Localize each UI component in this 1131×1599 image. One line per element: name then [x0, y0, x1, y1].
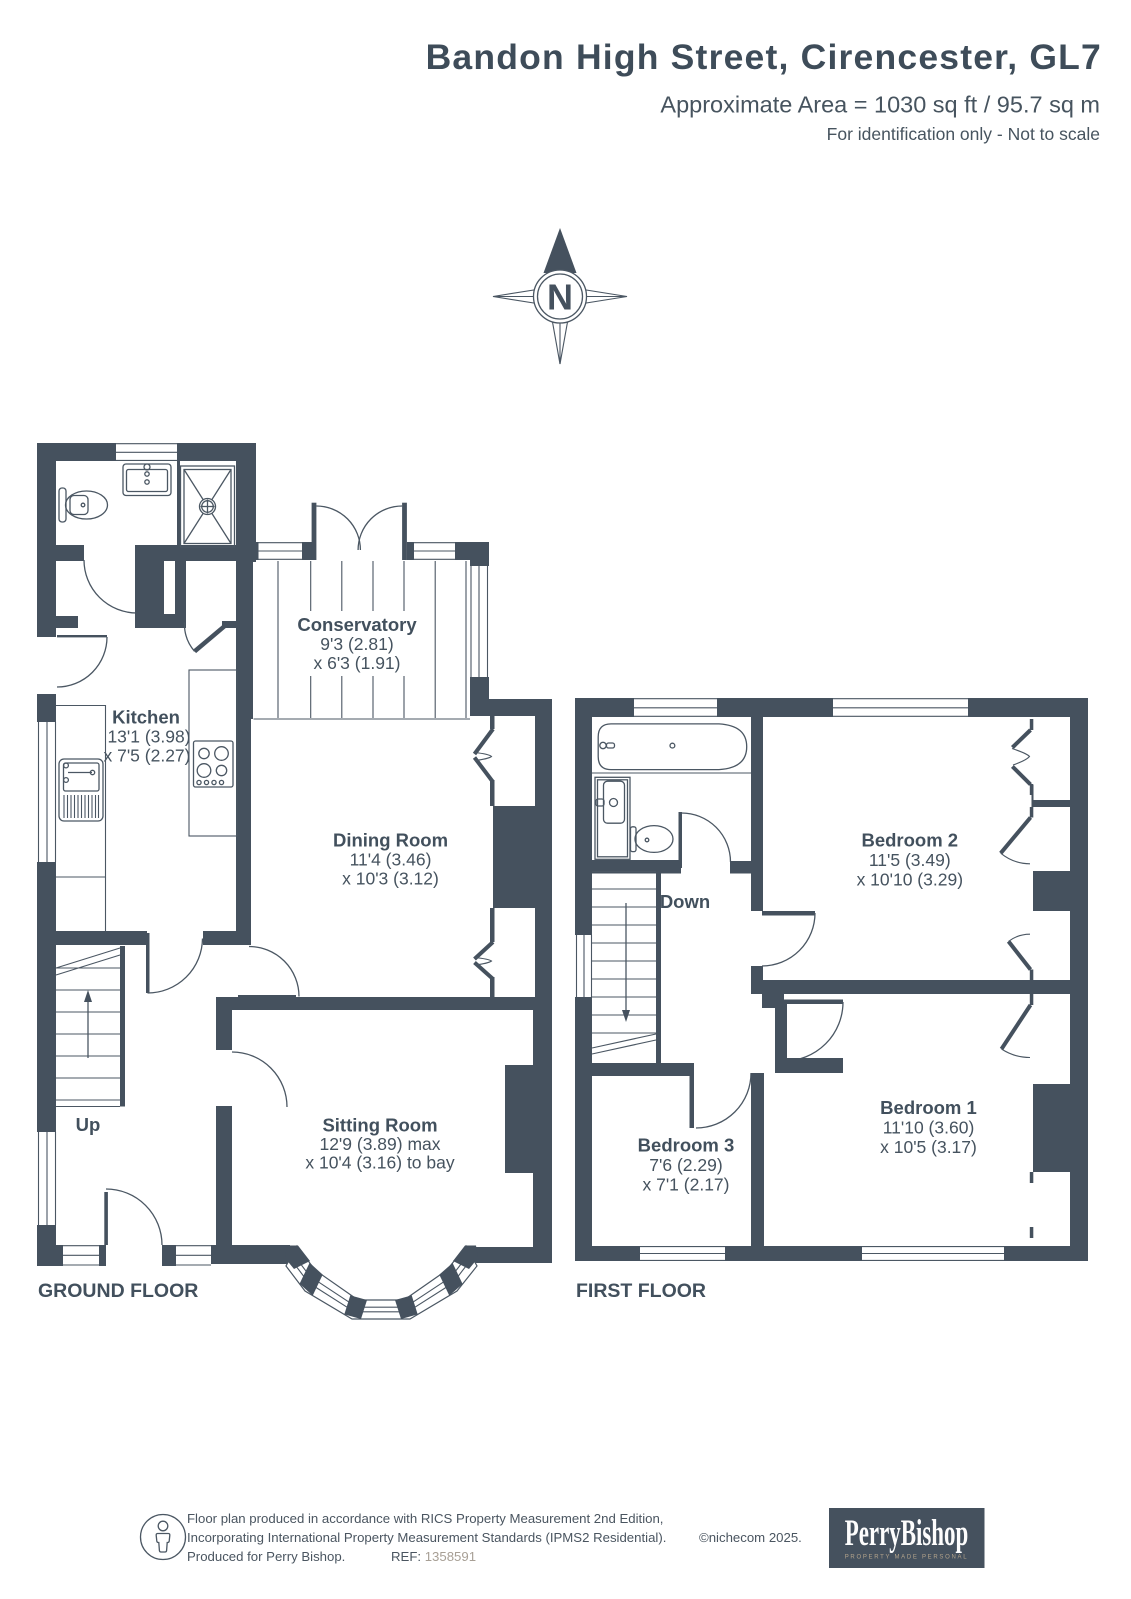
- svg-text:x 7'5 (2.27): x 7'5 (2.27): [104, 746, 191, 766]
- svg-text:PROPERTY MADE PERSONAL: PROPERTY MADE PERSONAL: [845, 1555, 969, 1561]
- svg-text:x 10'5 (3.17): x 10'5 (3.17): [880, 1137, 977, 1157]
- svg-text:For identification only - Not: For identification only - Not to scale: [827, 124, 1100, 144]
- svg-text:REF: 1358591: REF: 1358591: [391, 1549, 476, 1564]
- svg-text:Bedroom 2: Bedroom 2: [861, 830, 958, 851]
- svg-text:Kitchen: Kitchen: [112, 707, 180, 728]
- svg-text:Conservatory: Conservatory: [297, 614, 417, 635]
- svg-text:x 7'1 (2.17): x 7'1 (2.17): [643, 1175, 730, 1195]
- svg-text:Sitting Room: Sitting Room: [322, 1115, 437, 1136]
- svg-text:12'9 (3.89) max: 12'9 (3.89) max: [319, 1134, 440, 1154]
- svg-text:Floor plan produced in accorda: Floor plan produced in accordance with R…: [187, 1511, 663, 1526]
- svg-text:©nichecom 2025.: ©nichecom 2025.: [699, 1530, 802, 1545]
- svg-text:x 10'3 (3.12): x 10'3 (3.12): [342, 869, 439, 889]
- svg-text:11'5 (3.49): 11'5 (3.49): [869, 850, 951, 870]
- svg-text:Bedroom 3: Bedroom 3: [638, 1135, 735, 1156]
- svg-text:x 6'3 (1.91): x 6'3 (1.91): [314, 653, 401, 673]
- svg-text:Up: Up: [76, 1114, 101, 1135]
- svg-text:x 10'4 (3.16) to bay: x 10'4 (3.16) to bay: [305, 1153, 455, 1173]
- svg-text:11'10 (3.60): 11'10 (3.60): [883, 1118, 975, 1138]
- svg-text:Down: Down: [660, 891, 710, 912]
- svg-text:13'1 (3.98): 13'1 (3.98): [107, 727, 190, 747]
- svg-text:GROUND FLOOR: GROUND FLOOR: [38, 1280, 198, 1302]
- svg-text:Produced for Perry Bishop.: Produced for Perry Bishop.: [187, 1549, 345, 1564]
- svg-text:x 10'10 (3.29): x 10'10 (3.29): [857, 870, 963, 890]
- svg-text:7'6 (2.29): 7'6 (2.29): [649, 1155, 722, 1175]
- svg-text:Approximate Area = 1030 sq ft: Approximate Area = 1030 sq ft / 95.7 sq …: [660, 92, 1100, 118]
- svg-text:PerryBishop: PerryBishop: [845, 1513, 969, 1554]
- svg-text:Bedroom 1: Bedroom 1: [880, 1097, 977, 1118]
- svg-text:Bandon High Street, Cirenceste: Bandon High Street, Cirencester, GL7: [426, 37, 1102, 77]
- svg-text:Dining Room: Dining Room: [333, 830, 448, 851]
- svg-text:9'3 (2.81): 9'3 (2.81): [320, 634, 393, 654]
- svg-text:11'4 (3.46): 11'4 (3.46): [350, 850, 432, 870]
- svg-text:FIRST FLOOR: FIRST FLOOR: [576, 1280, 706, 1302]
- svg-text:Incorporating International Pr: Incorporating International Property Mea…: [187, 1530, 666, 1545]
- svg-text:N: N: [547, 277, 573, 318]
